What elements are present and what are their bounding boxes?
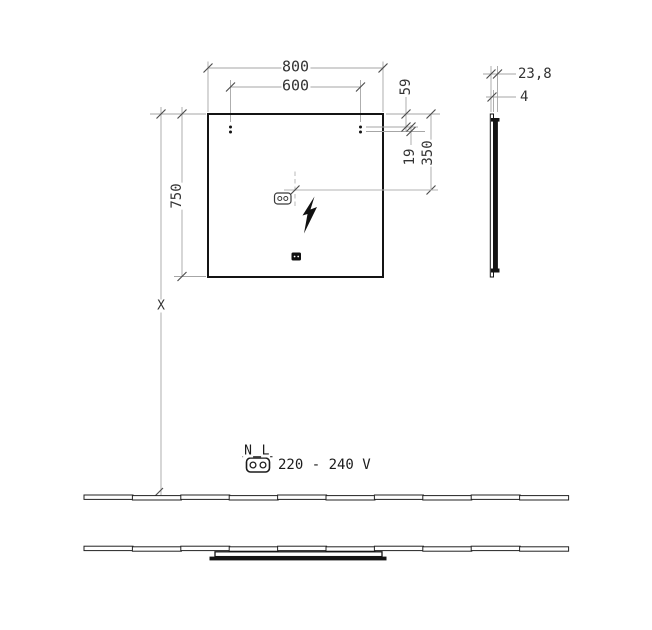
terminal-l-label: L xyxy=(261,444,271,457)
terminal-n-label: N xyxy=(243,444,253,457)
wall-line-upper xyxy=(84,495,569,500)
sensor-switch-icon xyxy=(292,253,302,261)
dim-x-label: X xyxy=(156,300,166,313)
power-connector-icon xyxy=(243,457,273,472)
lightning-bolt-icon xyxy=(303,197,318,234)
dim-800-label: 800 xyxy=(281,59,310,74)
cable-outlet-crosshair xyxy=(284,172,438,209)
dim-19-label: 19 xyxy=(403,147,417,166)
installation-drawing: 800 600 750 X 59 19 350 23,8 4 N L 220 -… xyxy=(0,0,652,630)
side-profile xyxy=(490,114,499,277)
mirror-plan-view xyxy=(210,552,387,561)
dim-glass-label: 4 xyxy=(519,90,529,104)
drawing-canvas xyxy=(0,0,652,630)
dim-59-label: 59 xyxy=(399,78,413,97)
wall-line-lower xyxy=(84,546,569,551)
dim-59 xyxy=(386,97,440,132)
mounting-holes xyxy=(229,126,362,134)
dim-depth-label: 23,8 xyxy=(517,67,553,81)
dim-600-label: 600 xyxy=(281,78,310,93)
dim-750-label: 750 xyxy=(170,182,184,209)
voltage-label: 220 - 240 V xyxy=(277,458,372,472)
hole-extension-lines xyxy=(366,127,425,132)
dim-depth-total xyxy=(483,66,516,112)
dim-glass-thickness xyxy=(486,90,516,112)
dim-350-label: 350 xyxy=(421,139,435,166)
two-pin-connector-icon xyxy=(275,193,292,204)
